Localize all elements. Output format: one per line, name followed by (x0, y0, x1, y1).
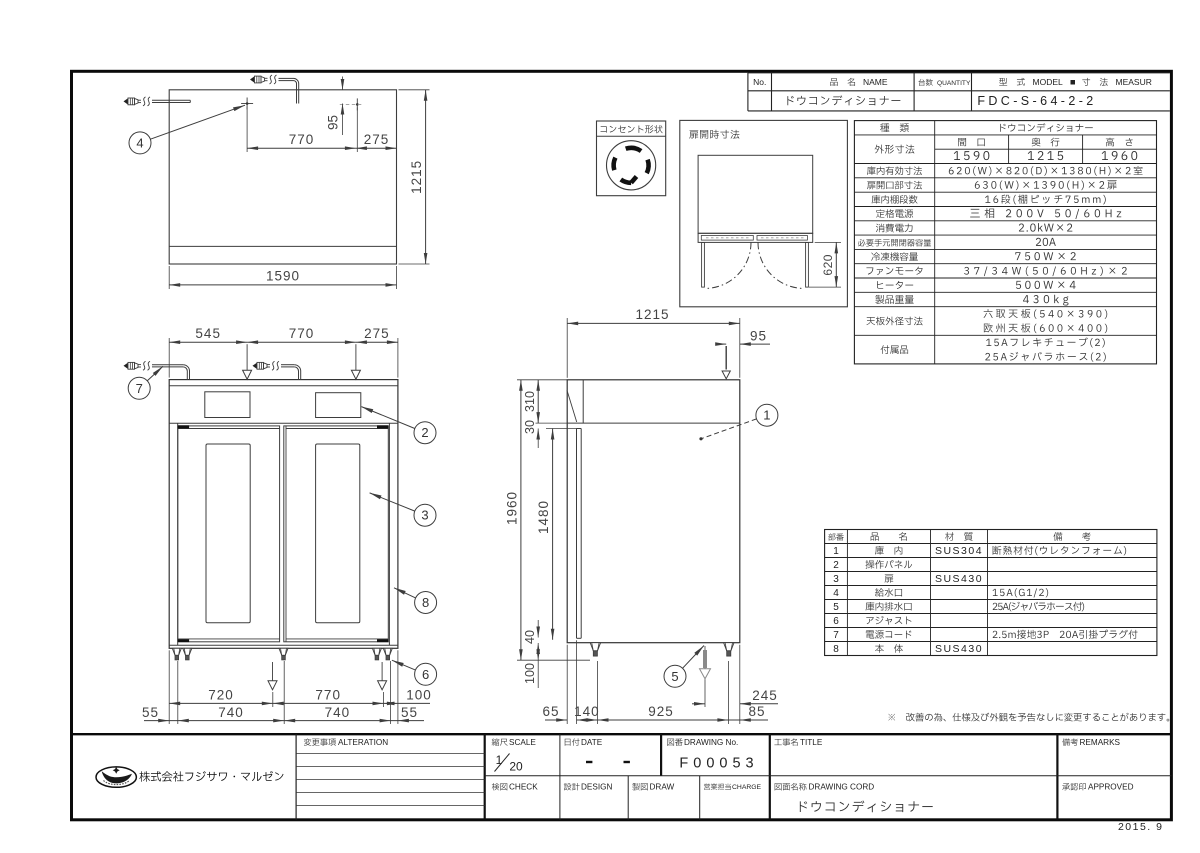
svg-text:1480: 1480 (536, 500, 551, 534)
svg-text:DESIGN: DESIGN (581, 783, 612, 792)
svg-text:5: 5 (671, 669, 678, 684)
svg-text:7: 7 (136, 381, 143, 396)
svg-text:5: 5 (833, 602, 839, 613)
svg-text:245: 245 (752, 688, 778, 703)
svg-text:740: 740 (325, 705, 351, 720)
svg-text:720: 720 (208, 688, 234, 703)
svg-text:SUS304: SUS304 (935, 545, 983, 557)
svg-text:SUS430: SUS430 (935, 643, 983, 655)
svg-text:TITLE: TITLE (800, 738, 823, 747)
svg-text:NAME: NAME (863, 77, 888, 87)
svg-text:770: 770 (289, 132, 315, 147)
svg-text:QUANTITY: QUANTITY (937, 80, 971, 87)
svg-text:CHARGE: CHARGE (732, 784, 762, 791)
svg-text:1: 1 (763, 408, 770, 423)
svg-text:20: 20 (509, 760, 523, 774)
svg-text:1215: 1215 (409, 160, 424, 194)
svg-text:DRAWING No.: DRAWING No. (684, 738, 738, 747)
svg-text:770: 770 (315, 688, 341, 703)
svg-text:770: 770 (289, 326, 315, 341)
svg-text:1: 1 (833, 546, 839, 557)
svg-text:6: 6 (422, 667, 429, 682)
svg-text:310: 310 (523, 391, 537, 412)
svg-text:SUS430: SUS430 (935, 573, 983, 585)
svg-text:6: 6 (833, 616, 839, 627)
svg-text:CHECK: CHECK (509, 783, 538, 792)
svg-text:275: 275 (364, 326, 390, 341)
svg-text:95: 95 (325, 115, 340, 130)
svg-text:95: 95 (750, 328, 767, 343)
svg-text:7: 7 (833, 630, 839, 641)
svg-text:DRAW: DRAW (650, 783, 675, 792)
svg-text:1: 1 (496, 753, 503, 767)
svg-text:140: 140 (574, 704, 600, 719)
svg-text:545: 545 (195, 326, 221, 341)
svg-text:8: 8 (833, 644, 839, 655)
svg-text:FDC-S-64-2-2: FDC-S-64-2-2 (977, 94, 1096, 108)
svg-text:SCALE: SCALE (509, 738, 536, 747)
svg-text:DATE: DATE (581, 738, 603, 747)
svg-text:40: 40 (523, 630, 537, 644)
svg-text:ALTERATION: ALTERATION (338, 738, 388, 747)
svg-text:1215: 1215 (635, 307, 669, 322)
svg-text:REMARKS: REMARKS (1080, 738, 1121, 747)
svg-text:85: 85 (748, 704, 765, 719)
svg-text:65: 65 (542, 704, 559, 719)
svg-text:2015. 9: 2015. 9 (1118, 821, 1164, 833)
svg-text:4: 4 (136, 135, 143, 150)
svg-text:APPROVED: APPROVED (1088, 783, 1134, 792)
svg-text:F00053: F00053 (679, 756, 758, 772)
svg-text:55: 55 (401, 705, 418, 720)
svg-text:100: 100 (523, 663, 537, 684)
svg-text:2: 2 (421, 425, 428, 440)
svg-text:3: 3 (833, 574, 839, 585)
svg-text:55: 55 (142, 705, 159, 720)
svg-text:100: 100 (406, 688, 432, 703)
svg-text:4: 4 (833, 588, 839, 599)
svg-text:No.: No. (753, 77, 766, 87)
svg-text:8: 8 (422, 595, 429, 610)
svg-text:3: 3 (421, 508, 428, 523)
svg-text:MEASUR: MEASUR (1116, 77, 1152, 87)
svg-text:620: 620 (821, 254, 835, 276)
svg-text:30: 30 (523, 420, 537, 434)
svg-text:MODEL: MODEL (1033, 77, 1064, 87)
svg-text:275: 275 (364, 132, 390, 147)
svg-text:1590: 1590 (266, 269, 300, 284)
svg-text:DRAWING CORD: DRAWING CORD (809, 783, 875, 792)
svg-text:1960: 1960 (505, 491, 520, 525)
svg-text:2: 2 (833, 560, 839, 571)
svg-text:740: 740 (218, 705, 244, 720)
svg-text:925: 925 (648, 704, 674, 719)
